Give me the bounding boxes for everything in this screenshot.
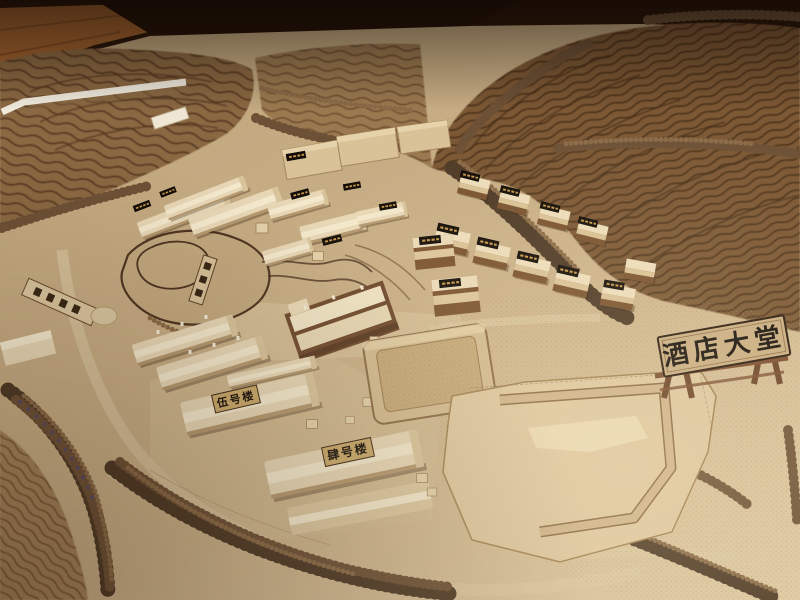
photo-architectural-model: 伍号楼 肆号楼 酒店大堂 bbox=[0, 0, 800, 600]
model-scene: 伍号楼 肆号楼 酒店大堂 bbox=[0, 0, 800, 600]
vignette-overlay bbox=[0, 0, 800, 600]
